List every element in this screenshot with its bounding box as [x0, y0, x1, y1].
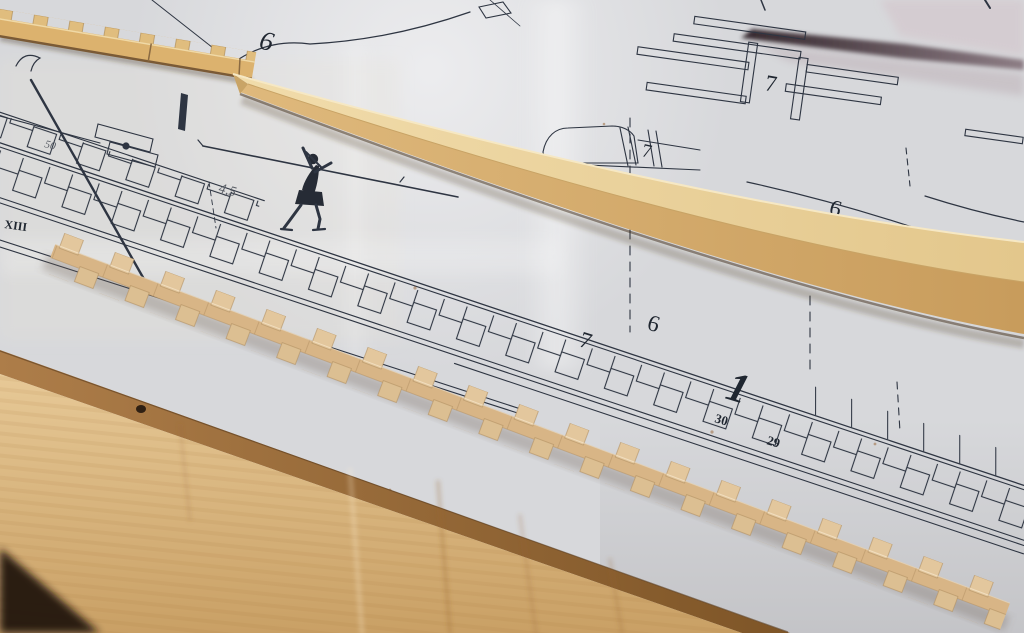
photo-model-ship-plan-scene: 6 7 7 6 7 6 1 30 29 XIII 4,5 50: [0, 0, 1024, 633]
board-hole: [136, 405, 146, 413]
figure-kilt: [295, 190, 324, 206]
photo-canvas: 6 7 7 6 7 6 1 30 29 XIII 4,5 50: [0, 0, 1024, 633]
bold-dot: [122, 142, 129, 149]
